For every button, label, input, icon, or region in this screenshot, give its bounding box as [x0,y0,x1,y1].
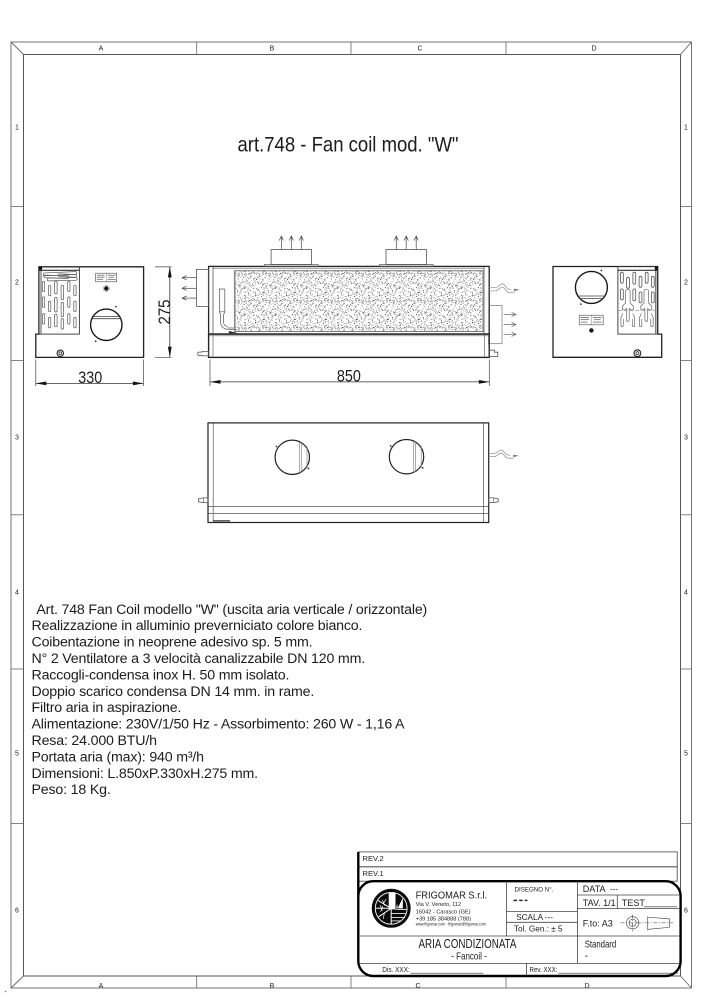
svg-text:Dis. XXX:: Dis. XXX: [382,965,410,974]
svg-text:Filtro aria in aspirazione.: Filtro aria in aspirazione. [32,700,182,716]
svg-text:Realizzazione in alluminio pre: Realizzazione in alluminio preverniciato… [32,618,363,634]
svg-text:TEST: TEST [622,898,646,908]
svg-text:Art. 748 Fan Coil modello "W": Art. 748 Fan Coil modello "W" (uscita ar… [36,602,427,618]
svg-text:DATA: DATA [583,884,606,894]
svg-text:C: C [415,983,420,990]
svg-text:4: 4 [15,590,19,597]
svg-text:5: 5 [15,751,19,758]
svg-text:D: D [584,983,589,990]
svg-text:B: B [270,983,275,990]
svg-text:Coibentazione in neoprene ades: Coibentazione in neoprene adesivo sp. 5 … [32,635,313,651]
svg-text:Doppio scarico condensa DN 14: Doppio scarico condensa DN 14 mm. in ram… [32,684,315,700]
svg-text:3: 3 [15,435,19,442]
svg-text:16042 - Carasco (GE): 16042 - Carasco (GE) [416,909,471,915]
svg-text:Tol. Gen.: ± 5: Tol. Gen.: ± 5 [514,924,563,933]
svg-text:1: 1 [684,125,688,132]
svg-text:Peso: 18 Kg.: Peso: 18 Kg. [32,782,111,798]
svg-text:Via V. Veneto, 112: Via V. Veneto, 112 [416,902,461,908]
svg-text:www.frigomar.com - frigomar@fr: www.frigomar.com - frigomar@frigomar.com [416,921,486,926]
svg-text:SCALA ---: SCALA --- [516,913,553,922]
svg-text:Raccogli-condensa inox H. 50 m: Raccogli-condensa inox H. 50 mm isolato. [32,667,290,683]
svg-text:---: --- [610,884,618,893]
svg-text:Dimensioni: L.850xP.330xH.275: Dimensioni: L.850xP.330xH.275 mm. [32,766,258,782]
svg-text:F.to: A3: F.to: A3 [583,919,613,929]
svg-text:6: 6 [15,908,19,915]
svg-text:2: 2 [684,280,688,287]
svg-text:REV.2: REV.2 [363,854,384,863]
svg-text:330: 330 [78,369,102,387]
svg-text:ARIA CONDIZIONATA: ARIA CONDIZIONATA [419,936,517,951]
svg-text:A: A [99,983,104,990]
svg-text:5: 5 [684,751,688,758]
svg-text:B: B [270,46,275,53]
svg-text:6: 6 [684,908,688,915]
svg-text:2: 2 [15,280,19,287]
svg-text:REV.1: REV.1 [363,869,384,878]
svg-text:C: C [417,46,422,53]
svg-text:FRIGOMAR S.r.l.: FRIGOMAR S.r.l. [416,891,488,902]
svg-text:TAV. 1/1: TAV. 1/1 [583,898,616,908]
svg-text:850: 850 [337,368,361,386]
svg-text:Resa: 24.000 BTU/h: Resa: 24.000 BTU/h [32,733,157,749]
svg-text:- Fancoil -: - Fancoil - [451,952,487,963]
svg-text:art.748 - Fan coil mod. "W": art.748 - Fan coil mod. "W" [238,134,459,157]
svg-text:Alimentazione: 230V/1/50 Hz -: Alimentazione: 230V/1/50 Hz - Assorbimen… [32,717,406,733]
svg-text:1: 1 [15,125,19,132]
svg-text:275: 275 [156,300,174,325]
svg-text:DISEGNO N°.: DISEGNO N°. [515,887,554,894]
svg-text:Standard: Standard [585,940,617,951]
svg-text:-: - [585,951,588,962]
svg-text:3: 3 [684,435,688,442]
svg-text:D: D [591,46,596,53]
svg-text:Portata aria (max): 940 m³/h: Portata aria (max): 940 m³/h [32,749,204,765]
svg-text:A: A [99,46,104,53]
svg-text:Rev. XXX:: Rev. XXX: [530,965,558,974]
svg-text:4: 4 [684,590,688,597]
svg-text:N° 2 Ventilatore a 3 velocità: N° 2 Ventilatore a 3 velocità canalizzab… [32,651,365,667]
